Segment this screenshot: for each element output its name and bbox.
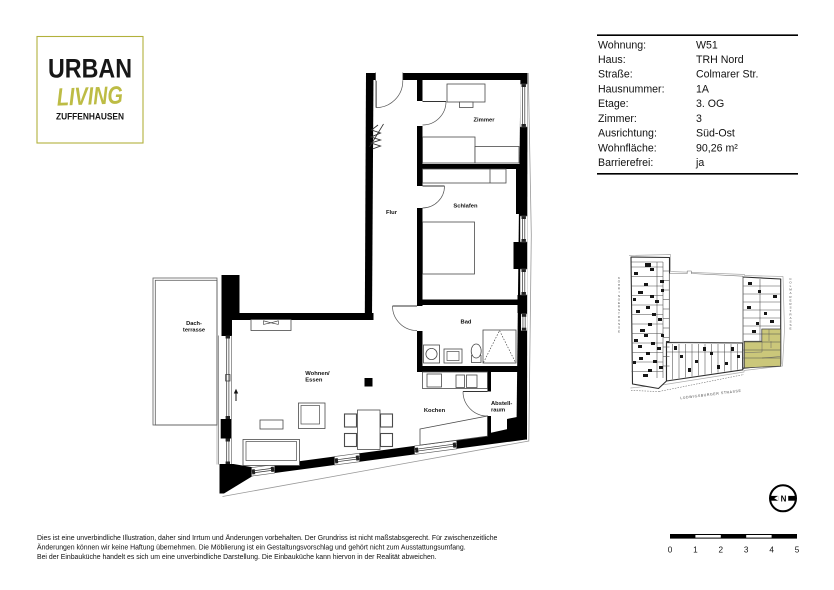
svg-text:Etage:: Etage: (598, 98, 629, 110)
svg-text:Zimmer:: Zimmer: (598, 113, 637, 125)
svg-text:Colmarer Str.: Colmarer Str. (696, 69, 758, 81)
svg-text:LIVING: LIVING (56, 81, 123, 111)
svg-text:N: N (781, 494, 787, 503)
svg-text:3. OG: 3. OG (696, 98, 724, 110)
svg-text:1A: 1A (696, 83, 710, 95)
svg-text:Bei der Einbauküche handelt es: Bei der Einbauküche handelt es sich um e… (37, 554, 437, 561)
svg-text:W51: W51 (696, 39, 718, 51)
svg-text:ZUFFENHAUSEN: ZUFFENHAUSEN (56, 112, 124, 122)
svg-text:TRH Nord: TRH Nord (696, 54, 744, 66)
svg-text:3: 3 (696, 113, 702, 125)
svg-text:Haus:: Haus: (598, 54, 626, 66)
svg-text:URBAN: URBAN (48, 54, 132, 84)
svg-text:Ausrichtung:: Ausrichtung: (598, 128, 657, 140)
svg-text:Süd-Ost: Süd-Ost (696, 128, 735, 140)
svg-text:Dies ist eine unverbindliche I: Dies ist eine unverbindliche Illustratio… (37, 534, 498, 542)
svg-text:0: 0 (668, 546, 673, 555)
svg-text:Barrierefrei:: Barrierefrei: (598, 157, 653, 169)
svg-text:2: 2 (719, 546, 724, 555)
svg-text:Kochen: Kochen (424, 408, 446, 414)
svg-text:Essen: Essen (305, 378, 323, 384)
svg-text:Schlafen: Schlafen (453, 204, 478, 210)
svg-text:Wohnfläche:: Wohnfläche: (598, 142, 657, 154)
svg-text:Dach-: Dach- (186, 321, 202, 327)
svg-text:Abstell-: Abstell- (491, 401, 512, 407)
svg-text:Flur: Flur (386, 210, 398, 216)
svg-text:raum: raum (491, 408, 505, 414)
svg-text:1: 1 (693, 546, 698, 555)
svg-text:Änderungen können wir keine Ha: Änderungen können wir keine Haftung über… (37, 543, 466, 551)
svg-text:3: 3 (744, 546, 749, 555)
svg-text:terrasse: terrasse (183, 327, 205, 333)
svg-text:4: 4 (769, 546, 774, 555)
svg-text:Wohnen/: Wohnen/ (305, 371, 330, 377)
svg-text:Hausnummer:: Hausnummer: (598, 83, 665, 95)
svg-text:Zimmer: Zimmer (474, 118, 496, 124)
svg-text:5: 5 (795, 546, 800, 555)
svg-text:Wohnung:: Wohnung: (598, 39, 646, 51)
svg-text:ja: ja (695, 157, 704, 169)
svg-text:90,26 m²: 90,26 m² (696, 142, 738, 154)
svg-text:Bad: Bad (461, 320, 472, 326)
svg-text:Straße:: Straße: (598, 69, 633, 81)
